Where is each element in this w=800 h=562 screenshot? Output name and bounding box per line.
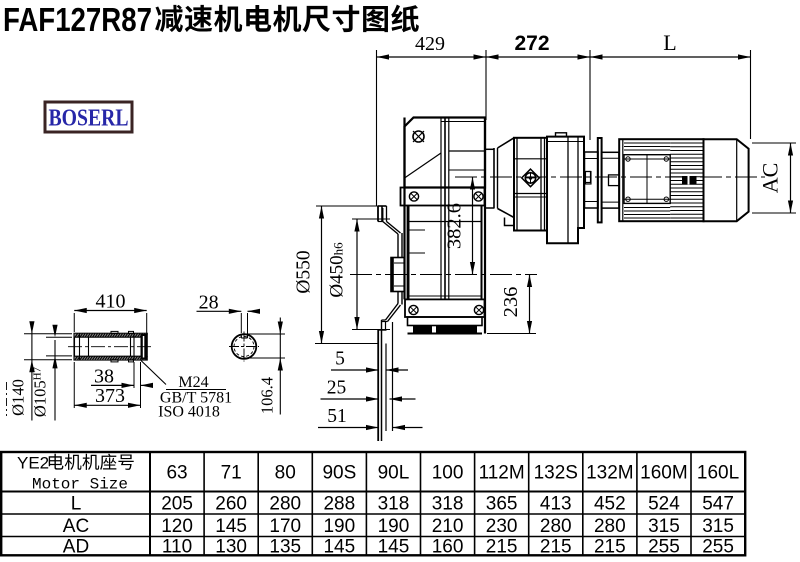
svg-text:120: 120 <box>161 516 193 537</box>
svg-text:255: 255 <box>648 537 680 558</box>
svg-text:L: L <box>71 494 82 515</box>
svg-text:215: 215 <box>540 537 572 558</box>
svg-text:112M: 112M <box>479 463 525 484</box>
svg-text:315: 315 <box>648 516 680 537</box>
svg-text:100: 100 <box>432 463 464 484</box>
svg-text:524: 524 <box>648 494 680 515</box>
svg-text:132S: 132S <box>534 463 578 484</box>
svg-text:51: 51 <box>327 406 347 427</box>
svg-text:ISO 4018: ISO 4018 <box>158 404 220 421</box>
svg-text:230: 230 <box>486 516 518 537</box>
svg-text:106.4: 106.4 <box>258 377 277 414</box>
svg-text:288: 288 <box>323 494 355 515</box>
svg-text:25: 25 <box>327 378 347 399</box>
svg-text:452: 452 <box>594 494 626 515</box>
svg-text:429: 429 <box>415 33 445 55</box>
svg-text:410: 410 <box>96 291 126 313</box>
svg-text:AD: AD <box>63 537 89 558</box>
svg-text:160M: 160M <box>640 463 688 484</box>
svg-text:145: 145 <box>323 537 355 558</box>
svg-text:63: 63 <box>166 463 187 484</box>
svg-text:AC: AC <box>758 163 783 194</box>
svg-text:Motor Size: Motor Size <box>32 476 128 494</box>
svg-text:190: 190 <box>323 516 355 537</box>
svg-text:280: 280 <box>594 516 626 537</box>
svg-text:315: 315 <box>702 516 734 537</box>
svg-text:Ø550: Ø550 <box>294 250 315 293</box>
svg-text:M24: M24 <box>178 374 208 391</box>
svg-text:280: 280 <box>269 494 301 515</box>
svg-text:318: 318 <box>378 494 410 515</box>
svg-text:L: L <box>663 30 676 55</box>
svg-text:318: 318 <box>432 494 464 515</box>
svg-text:255: 255 <box>702 537 734 558</box>
svg-text:130: 130 <box>215 537 247 558</box>
svg-text:170: 170 <box>269 516 301 537</box>
svg-text:373: 373 <box>95 385 125 407</box>
svg-text:90S: 90S <box>322 463 356 484</box>
svg-text:110: 110 <box>162 537 192 558</box>
svg-text:145: 145 <box>378 537 410 558</box>
svg-text:215: 215 <box>486 537 518 558</box>
svg-text:90L: 90L <box>378 463 410 484</box>
svg-text:145: 145 <box>215 516 247 537</box>
svg-text:80: 80 <box>275 463 296 484</box>
svg-text:AC: AC <box>63 516 89 537</box>
svg-text:160: 160 <box>432 537 464 558</box>
svg-text:413: 413 <box>540 494 572 515</box>
svg-text:215: 215 <box>594 537 626 558</box>
svg-text:132M: 132M <box>586 463 634 484</box>
svg-text:YE2: YE2 <box>17 454 49 473</box>
svg-text:547: 547 <box>702 494 734 515</box>
svg-text:365: 365 <box>486 494 518 515</box>
svg-text:160L: 160L <box>697 463 739 484</box>
svg-text:FAF127R87: FAF127R87 <box>3 1 152 38</box>
svg-text:71: 71 <box>221 463 242 484</box>
svg-text:BOSERL: BOSERL <box>49 106 129 132</box>
svg-text:Ø450h6: Ø450h6 <box>327 242 348 298</box>
svg-text:135: 135 <box>269 537 301 558</box>
svg-text:382.6: 382.6 <box>444 203 466 249</box>
svg-text:280: 280 <box>540 516 572 537</box>
svg-text:Ø140: Ø140 <box>9 379 28 416</box>
svg-text:210: 210 <box>432 516 464 537</box>
svg-text:260: 260 <box>215 494 247 515</box>
svg-text:236: 236 <box>500 287 522 318</box>
svg-text:5: 5 <box>335 349 345 370</box>
svg-text:272: 272 <box>514 32 549 55</box>
svg-text:28: 28 <box>199 292 219 314</box>
svg-text:205: 205 <box>161 494 193 515</box>
svg-text:190: 190 <box>378 516 410 537</box>
